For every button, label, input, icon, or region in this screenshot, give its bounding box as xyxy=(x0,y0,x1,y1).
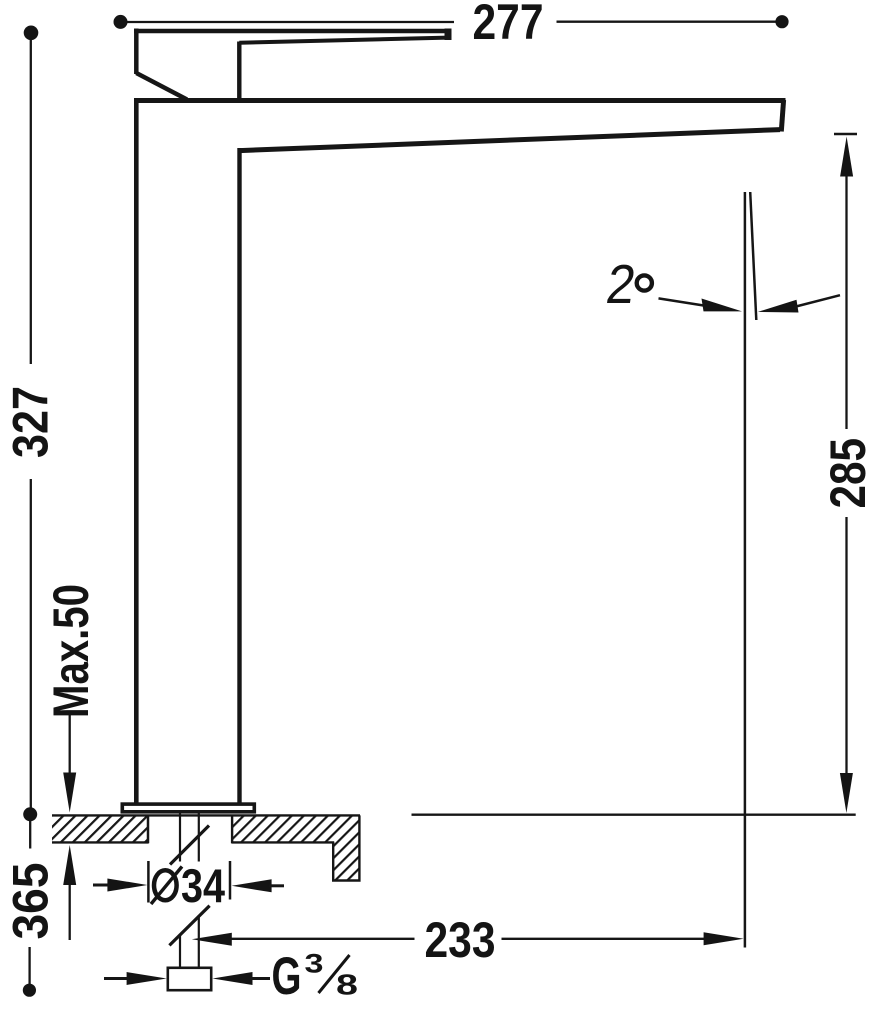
svg-text:3: 3 xyxy=(305,949,324,979)
svg-text:365: 365 xyxy=(3,863,59,940)
svg-text:277: 277 xyxy=(473,0,544,50)
svg-text:G: G xyxy=(272,947,302,1006)
svg-text:34: 34 xyxy=(181,860,225,913)
svg-text:Max.50: Max.50 xyxy=(43,584,99,718)
svg-text:327: 327 xyxy=(3,386,59,458)
svg-text:285: 285 xyxy=(820,438,876,509)
svg-text:8: 8 xyxy=(336,970,358,1002)
svg-text:233: 233 xyxy=(425,912,496,968)
